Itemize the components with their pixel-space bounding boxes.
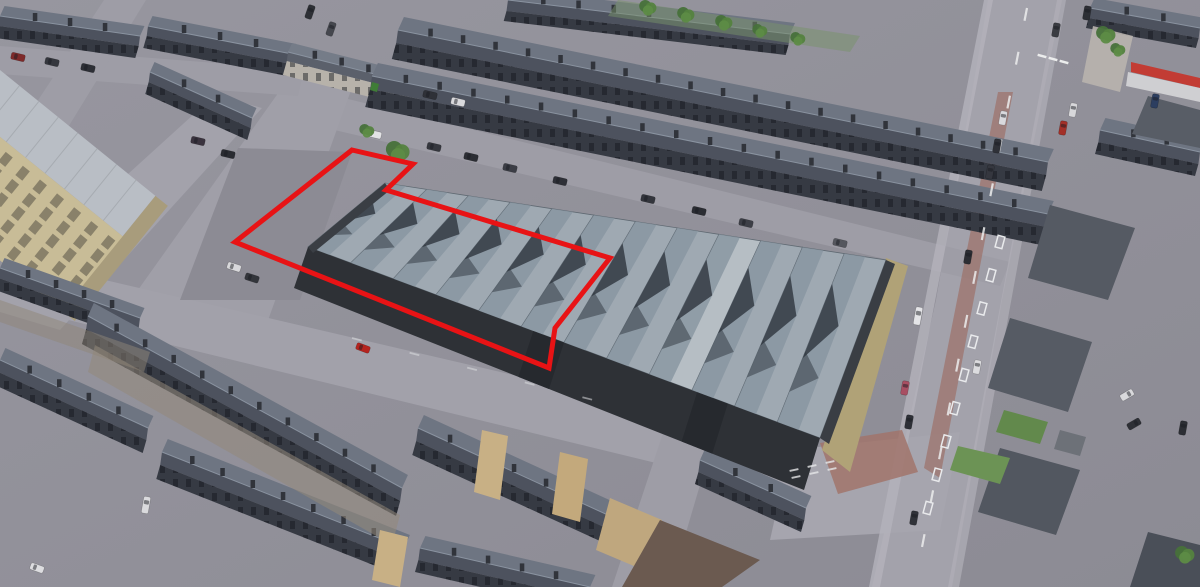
chimney	[1013, 147, 1018, 155]
chimney	[1012, 199, 1017, 207]
chimney	[26, 270, 31, 278]
chimney	[640, 123, 645, 131]
chimney	[461, 35, 466, 43]
chimney	[526, 48, 531, 56]
chimney	[366, 64, 371, 72]
chimney	[143, 339, 148, 347]
chimney	[190, 456, 195, 464]
chimney	[851, 114, 856, 122]
chimney	[57, 379, 62, 387]
tree-canopy	[1113, 48, 1122, 57]
chimney	[339, 58, 344, 66]
chimney	[437, 82, 442, 90]
chimney	[742, 144, 747, 152]
car-windshield	[916, 311, 922, 316]
chimney	[768, 484, 773, 492]
tree-canopy	[719, 20, 729, 30]
chimney	[978, 192, 983, 200]
tree-canopy	[362, 129, 371, 138]
chimney	[314, 433, 319, 441]
chimney	[775, 151, 780, 159]
chimney	[27, 366, 32, 374]
chimney	[1161, 13, 1166, 21]
chimney	[591, 62, 596, 70]
chimney	[251, 480, 256, 488]
chimney	[512, 464, 517, 472]
chimney	[539, 103, 544, 111]
chimney	[286, 417, 291, 425]
chimney	[688, 81, 693, 89]
chimney	[656, 75, 661, 83]
chimney	[110, 300, 115, 308]
chimney	[818, 108, 823, 116]
chimney	[809, 158, 814, 166]
chimney	[254, 39, 258, 47]
chimney	[216, 95, 221, 103]
tree-canopy	[1100, 32, 1112, 44]
chimney	[448, 435, 453, 443]
chimney	[182, 25, 187, 33]
chimney	[428, 29, 433, 37]
chimney	[103, 23, 108, 31]
chimney	[981, 141, 986, 149]
chimney	[520, 563, 525, 571]
chimney	[182, 79, 187, 87]
chimney	[544, 479, 549, 487]
chimney	[674, 130, 679, 138]
chimney	[623, 68, 628, 76]
chimney	[944, 185, 949, 193]
chimney	[558, 55, 563, 63]
chimney	[311, 504, 316, 512]
chimney	[229, 386, 234, 394]
chimney	[404, 75, 409, 83]
chimney	[200, 371, 205, 379]
chimney	[493, 42, 498, 50]
chimney	[708, 137, 713, 145]
aerial-imagery	[0, 0, 1200, 587]
chimney	[541, 0, 546, 4]
chimney	[733, 468, 738, 476]
chimney	[452, 548, 457, 556]
chimney	[114, 324, 119, 332]
chimney	[911, 178, 916, 186]
chimney	[573, 109, 578, 117]
chimney	[220, 468, 225, 476]
chimney	[371, 464, 376, 472]
chimney	[554, 571, 559, 579]
chimney	[505, 96, 510, 104]
chimney	[877, 172, 882, 180]
chimney	[1124, 7, 1129, 15]
chimney	[786, 101, 791, 109]
chimney	[486, 556, 491, 564]
tree-canopy	[643, 5, 653, 15]
tree-canopy	[1179, 552, 1191, 564]
chimney	[68, 18, 73, 26]
tree-canopy	[681, 12, 691, 22]
tree-canopy	[755, 29, 764, 38]
chimney	[116, 406, 121, 414]
chimney	[343, 449, 348, 457]
chimney	[471, 89, 476, 97]
chimney	[257, 402, 262, 410]
chimney	[606, 116, 611, 124]
chimney	[218, 32, 223, 40]
chimney	[916, 128, 921, 136]
chimney	[753, 95, 758, 103]
chimney	[171, 355, 176, 363]
aerial-map-canvas[interactable]	[0, 0, 1200, 587]
chimney	[883, 121, 888, 129]
tree-canopy	[793, 37, 802, 46]
chimney	[313, 51, 318, 59]
chimney	[281, 492, 286, 500]
chimney	[33, 13, 38, 21]
chimney	[721, 88, 726, 96]
chimney	[576, 1, 581, 9]
chimney	[54, 280, 59, 288]
chimney	[82, 290, 87, 298]
chimney	[87, 393, 92, 401]
chimney	[843, 165, 848, 173]
chimney	[948, 134, 953, 142]
